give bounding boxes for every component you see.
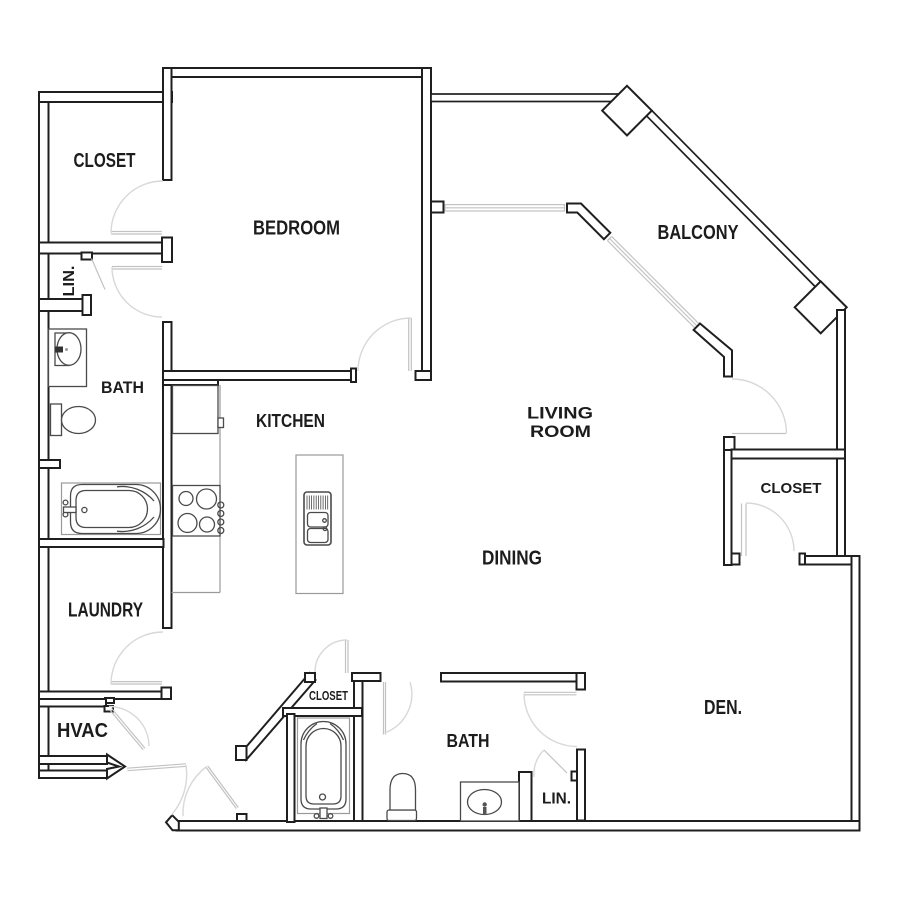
svg-text:BALCONY: BALCONY [658, 222, 740, 244]
svg-text:LIVING: LIVING [527, 404, 593, 423]
svg-text:LIN.: LIN. [542, 791, 571, 808]
svg-text:ROOM: ROOM [530, 422, 591, 441]
svg-text:BEDROOM: BEDROOM [253, 218, 340, 240]
svg-text:LIN.: LIN. [61, 266, 78, 297]
svg-text:KITCHEN: KITCHEN [256, 410, 325, 431]
svg-text:CLOSET: CLOSET [74, 150, 136, 172]
svg-text:BATH: BATH [101, 378, 144, 397]
svg-text:CLOSET: CLOSET [761, 480, 822, 497]
svg-text:CLOSET: CLOSET [309, 689, 348, 703]
svg-text:BATH: BATH [447, 730, 490, 751]
svg-text:DINING: DINING [482, 548, 542, 570]
svg-text:DEN.: DEN. [704, 697, 742, 719]
svg-text:HVAC: HVAC [57, 720, 108, 742]
svg-text:LAUNDRY: LAUNDRY [68, 600, 144, 622]
